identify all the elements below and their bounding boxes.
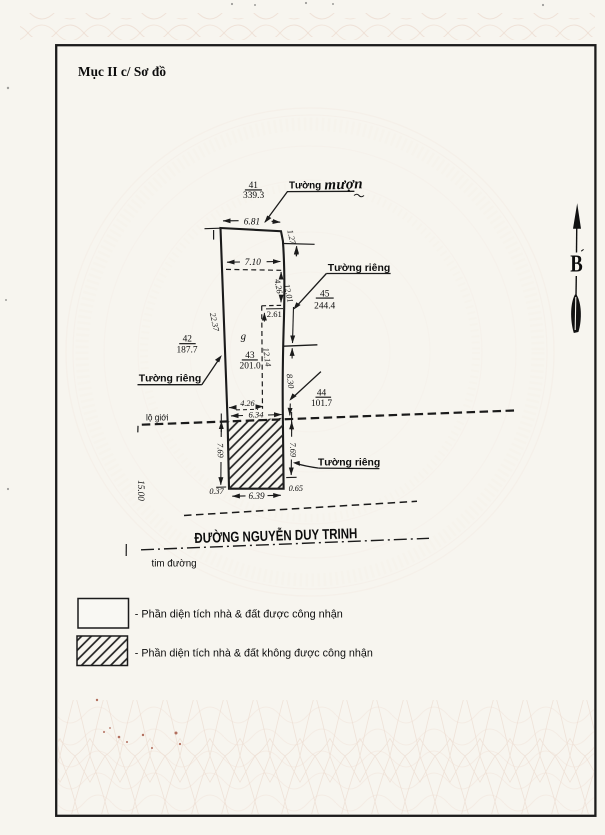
svg-text:187.7: 187.7 [176,346,197,356]
svg-text:201.0: 201.0 [240,361,261,371]
svg-text:6.81: 6.81 [244,218,260,228]
svg-text:244.4: 244.4 [314,301,335,311]
svg-text:101.7: 101.7 [311,399,332,409]
svg-text:339.3: 339.3 [243,191,264,201]
svg-text:B: B [570,250,582,277]
svg-text:Mục II c/ Sơ đồ: Mục II c/ Sơ đồ [78,65,166,80]
svg-text:6.39: 6.39 [248,491,264,501]
svg-text:7.10: 7.10 [245,257,261,267]
svg-text:g: g [241,332,246,343]
svg-text:4.26: 4.26 [240,399,255,408]
svg-text:Tường riêng: Tường riêng [139,374,201,385]
svg-text:7.69: 7.69 [215,443,225,459]
svg-text:lộ giới: lộ giới [146,412,169,423]
svg-text:mượn: mượn [324,176,363,193]
svg-text:Tường: Tường [289,181,321,192]
svg-text:0.65: 0.65 [289,484,303,493]
svg-text:2.61: 2.61 [267,309,282,319]
svg-text:0.37: 0.37 [209,487,224,496]
svg-text:Tường riêng: Tường riêng [318,458,380,469]
svg-text:7.69: 7.69 [288,442,298,458]
svg-text:6.34: 6.34 [248,410,264,420]
svg-text:tim đường: tim đường [152,559,197,570]
svg-text:Tường riêng: Tường riêng [328,263,390,274]
svg-text:15.00: 15.00 [136,480,146,501]
svg-text:- Phần diện tích nhà & đất khô: - Phần diện tích nhà & đất không được cô… [135,647,373,659]
svg-text:41: 41 [249,181,259,191]
svg-text:- Phần diện tích nhà & đất đượ: - Phần diện tích nhà & đất được công nhậ… [135,609,343,621]
